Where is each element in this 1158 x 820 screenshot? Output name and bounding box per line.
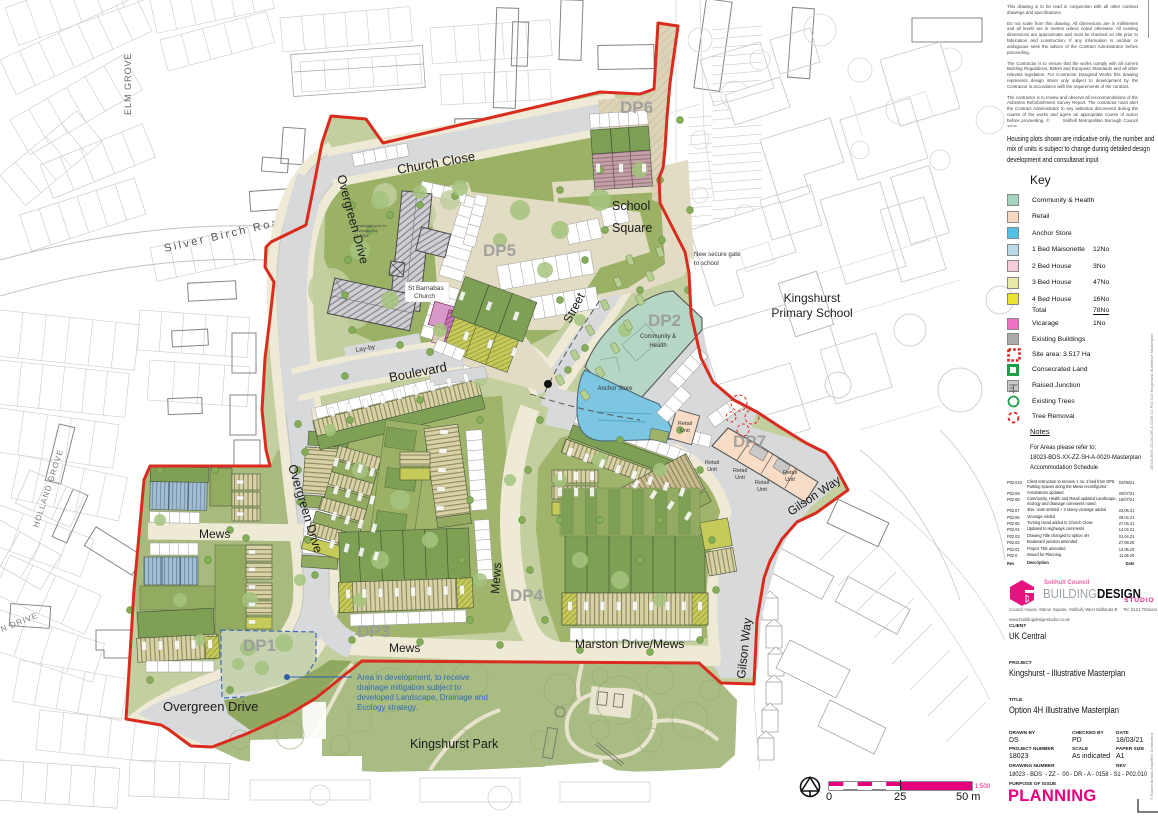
svg-text:DP2: DP2	[648, 311, 681, 330]
svg-text:Retail: Retail	[678, 421, 692, 427]
svg-text:Church: Church	[414, 293, 435, 300]
svg-text:Overgreen Drive: Overgreen Drive	[163, 699, 258, 714]
svg-text:Kingshurst Park: Kingshurst Park	[410, 737, 499, 751]
svg-text:Unit: Unit	[707, 467, 717, 473]
svg-text:drainage mitigation subject to: drainage mitigation subject to	[357, 683, 462, 692]
svg-text:0: 0	[826, 791, 832, 803]
svg-text:St Barnabas: St Barnabas	[408, 285, 445, 292]
svg-text:ELM GROVE: ELM GROVE	[123, 52, 133, 115]
svg-text:Anchor Store: Anchor Store	[597, 386, 633, 392]
svg-text:Marston Drive/Mews: Marston Drive/Mews	[575, 637, 684, 651]
svg-text:New secure gate: New secure gate	[694, 251, 741, 258]
svg-text:DP1: DP1	[243, 636, 276, 655]
svg-text:DP6: DP6	[620, 98, 653, 117]
svg-text:Unit: Unit	[680, 428, 690, 434]
svg-text:Mews: Mews	[389, 641, 420, 655]
svg-text:CLAJDE: CLAJDE	[354, 233, 370, 238]
svg-text:Primary School: Primary School	[771, 306, 852, 320]
svg-text:1:500: 1:500	[975, 784, 991, 790]
svg-text:DP5: DP5	[483, 241, 516, 260]
svg-text:Unit: Unit	[785, 477, 795, 483]
svg-text:Retail: Retail	[733, 468, 747, 474]
svg-text:Mews: Mews	[488, 562, 504, 594]
svg-text:School: School	[612, 199, 650, 213]
svg-text:Area in development, to receiv: Area in development, to receive	[357, 673, 470, 682]
svg-text:developed Landscape, Drainage: developed Landscape, Drainage and	[357, 693, 488, 702]
svg-text:to school: to school	[694, 260, 719, 267]
svg-text:Mews: Mews	[199, 527, 230, 541]
svg-text:Retail: Retail	[783, 470, 797, 476]
svg-text:DP4: DP4	[510, 586, 544, 605]
svg-text:Ecology strategy.: Ecology strategy.	[357, 703, 418, 712]
svg-text:Retail: Retail	[755, 480, 769, 486]
svg-text:DP7: DP7	[733, 432, 766, 451]
svg-text:Community &: Community &	[640, 334, 676, 340]
svg-text:Health: Health	[649, 343, 666, 349]
svg-text:DP3: DP3	[357, 622, 390, 641]
svg-text:Unit: Unit	[735, 475, 745, 481]
svg-text:25: 25	[894, 791, 906, 803]
svg-text:Square: Square	[612, 221, 652, 235]
svg-text:Retail: Retail	[705, 460, 719, 466]
svg-text:Kingshurst: Kingshurst	[784, 291, 841, 305]
svg-text:50 m: 50 m	[956, 791, 980, 803]
svg-text:Unit: Unit	[757, 487, 767, 493]
